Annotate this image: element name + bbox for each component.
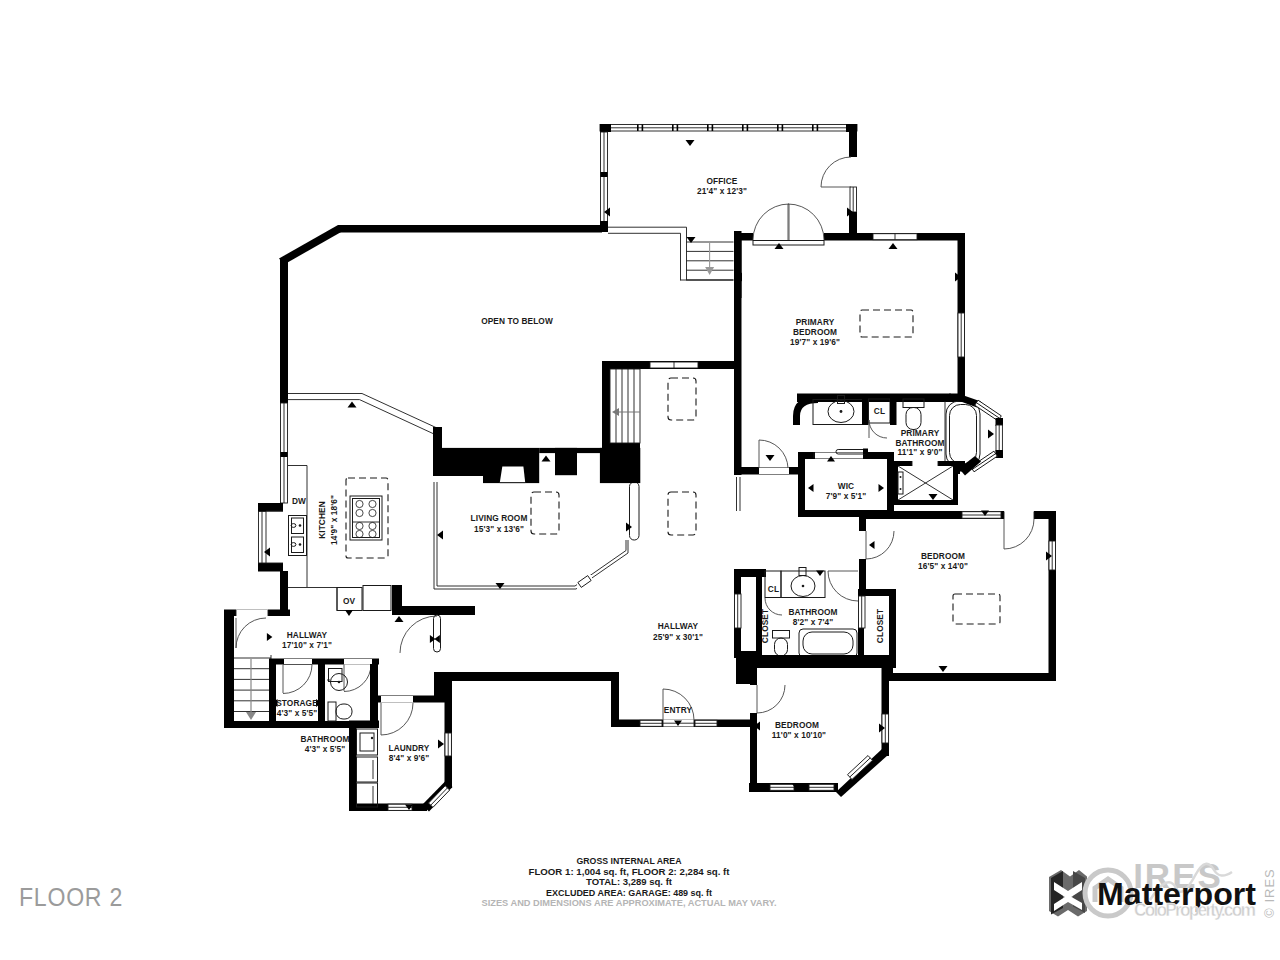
svg-text:4'3" x 5'5": 4'3" x 5'5" bbox=[305, 744, 346, 754]
svg-text:7'9" x 5'1": 7'9" x 5'1" bbox=[826, 491, 867, 501]
svg-text:HALLWAY: HALLWAY bbox=[287, 630, 328, 640]
svg-text:11'0" x 10'10": 11'0" x 10'10" bbox=[772, 730, 826, 740]
svg-text:TOTAL: 3,289 sq. ft: TOTAL: 3,289 sq. ft bbox=[586, 877, 672, 887]
svg-text:OPEN TO BELOW: OPEN TO BELOW bbox=[481, 316, 553, 326]
svg-text:STORAGE: STORAGE bbox=[276, 698, 318, 708]
svg-text:GROSS INTERNAL AREA: GROSS INTERNAL AREA bbox=[577, 856, 682, 866]
svg-text:LAUNDRY: LAUNDRY bbox=[389, 743, 430, 753]
svg-text:FLOOR 2: FLOOR 2 bbox=[19, 883, 123, 911]
svg-text:21'4" x 12'3": 21'4" x 12'3" bbox=[697, 186, 747, 196]
svg-text:19'7" x 19'6": 19'7" x 19'6" bbox=[790, 337, 840, 347]
svg-text:HALLWAY: HALLWAY bbox=[658, 621, 699, 631]
svg-text:25'9" x 30'1": 25'9" x 30'1" bbox=[653, 632, 703, 642]
svg-text:16'5" x 14'0": 16'5" x 14'0" bbox=[918, 561, 968, 571]
svg-text:ColoProperty.com: ColoProperty.com bbox=[1134, 900, 1256, 920]
svg-text:LIVING ROOM: LIVING ROOM bbox=[471, 513, 528, 523]
svg-text:4'3" x 5'5": 4'3" x 5'5" bbox=[277, 708, 318, 718]
svg-text:17'10" x 7'1": 17'10" x 7'1" bbox=[282, 640, 332, 650]
svg-text:KITCHEN: KITCHEN bbox=[317, 501, 327, 539]
svg-text:BEDROOM: BEDROOM bbox=[793, 327, 837, 337]
svg-text:ENTRY: ENTRY bbox=[664, 705, 693, 715]
svg-text:WIC: WIC bbox=[838, 481, 854, 491]
svg-text:OV: OV bbox=[343, 596, 356, 606]
svg-text:CLOSET: CLOSET bbox=[875, 609, 885, 643]
svg-text:EXCLUDED AREA: GARAGE: 489 sq.: EXCLUDED AREA: GARAGE: 489 sq. ft bbox=[546, 888, 712, 898]
svg-text:14'9" x 18'6": 14'9" x 18'6" bbox=[329, 495, 339, 545]
svg-text:PRIMARY: PRIMARY bbox=[901, 428, 940, 438]
svg-text:BATHROOM: BATHROOM bbox=[895, 438, 944, 448]
svg-text:DW: DW bbox=[292, 496, 306, 506]
svg-text:BATHROOM: BATHROOM bbox=[788, 607, 837, 617]
svg-text:OFFICE: OFFICE bbox=[706, 176, 737, 186]
svg-text:CL: CL bbox=[768, 584, 779, 594]
svg-text:FLOOR 1: 1,004 sq. ft, FLOOR 2: FLOOR 1: 1,004 sq. ft, FLOOR 2: 2,284 sq… bbox=[529, 867, 730, 877]
svg-text:PRIMARY: PRIMARY bbox=[796, 317, 835, 327]
svg-text:BEDROOM: BEDROOM bbox=[921, 551, 965, 561]
svg-text:© IRES: © IRES bbox=[1262, 868, 1277, 918]
svg-text:11'1" x 9'0": 11'1" x 9'0" bbox=[898, 447, 943, 457]
svg-text:BEDROOM: BEDROOM bbox=[775, 720, 819, 730]
svg-text:CLOSET: CLOSET bbox=[760, 609, 770, 643]
svg-text:BATHROOM: BATHROOM bbox=[300, 734, 349, 744]
svg-text:SIZES AND DIMENSIONS ARE APPRO: SIZES AND DIMENSIONS ARE APPROXIMATE, AC… bbox=[482, 898, 777, 908]
svg-text:15'3" x 13'6": 15'3" x 13'6" bbox=[474, 524, 524, 534]
svg-text:8'2" x 7'4": 8'2" x 7'4" bbox=[793, 617, 834, 627]
svg-text:CL: CL bbox=[874, 406, 885, 416]
svg-text:8'4" x 9'6": 8'4" x 9'6" bbox=[389, 753, 430, 763]
